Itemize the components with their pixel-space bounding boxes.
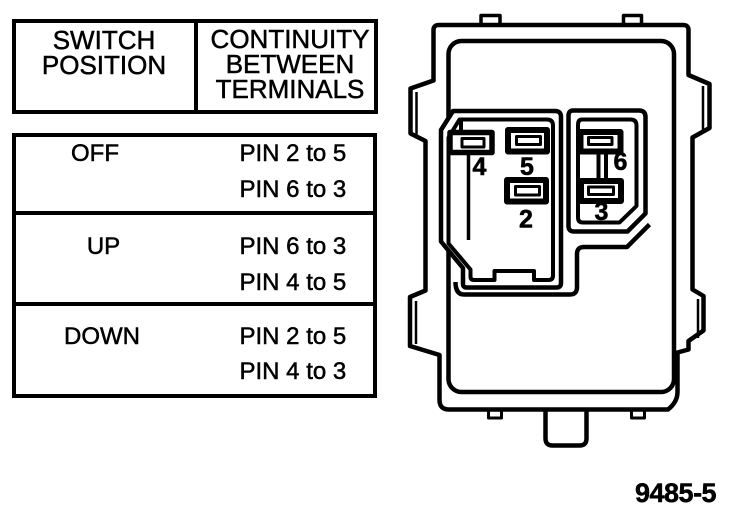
svg-text:3: 3 — [595, 198, 609, 226]
svg-text:9485-5: 9485-5 — [635, 478, 717, 506]
svg-text:2: 2 — [519, 206, 533, 234]
svg-text:4: 4 — [473, 153, 487, 181]
svg-text:6: 6 — [614, 148, 628, 176]
svg-text:5: 5 — [520, 153, 534, 181]
